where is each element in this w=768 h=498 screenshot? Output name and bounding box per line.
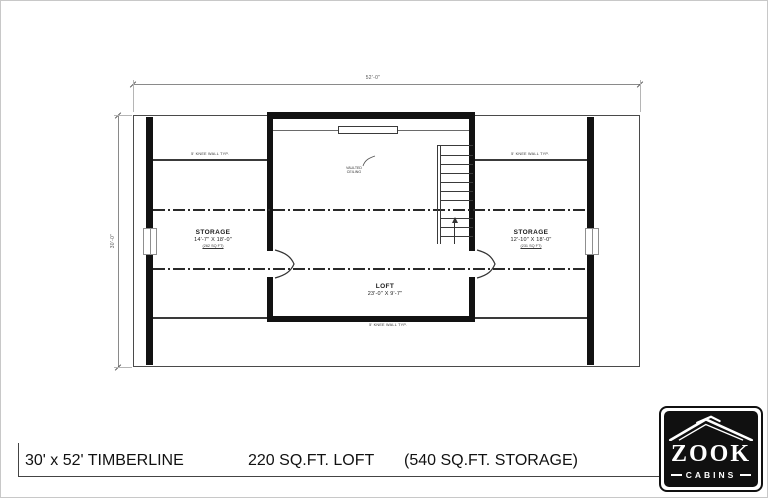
logo-background: ZOOK CABINS — [664, 411, 758, 487]
room-size: 14'-7" X 18'-0" — [163, 237, 263, 244]
room-name: STORAGE — [481, 229, 581, 237]
room-name: STORAGE — [163, 229, 263, 237]
opening-chevron-right — [477, 250, 495, 278]
knee-wall-note-bottom: 5' KNEE WALL TYP. — [338, 323, 438, 327]
room-size: 23'-0" X 9'-7" — [335, 291, 435, 298]
loft-label: LOFT 23'-0" X 9'-7" — [335, 283, 435, 298]
title-block-rule — [18, 476, 660, 477]
floor-plan-sheet: 52'-0" 30'-0" — [0, 0, 768, 498]
plan-title: 30' x 52' TIMBERLINE — [25, 452, 184, 470]
vaulted-leader-line — [363, 156, 375, 166]
loft-area-text: 220 SQ.FT. LOFT — [248, 452, 374, 470]
vaulted-note-line2: CEILING — [340, 170, 368, 174]
room-note: (262 SQ FT) — [163, 244, 263, 249]
logo-dash-left — [671, 474, 681, 476]
knee-wall-note-left: 5' KNEE WALL TYP. — [160, 152, 260, 156]
room-size: 12'-10" X 18'-0" — [481, 237, 581, 244]
logo-subtitle-text: CABINS — [686, 470, 737, 480]
logo-dash-right — [740, 474, 750, 476]
title-block-divider — [18, 443, 19, 477]
cabin-roof-icon — [667, 415, 755, 441]
knee-wall-note-right: 5' KNEE WALL TYP. — [480, 152, 580, 156]
room-note: (231 SQ FT) — [481, 244, 581, 249]
logo-subtitle-row: CABINS — [671, 470, 750, 480]
storage-right-label: STORAGE 12'-10" X 18'-0" (231 SQ FT) — [481, 229, 581, 249]
logo-brand-text: ZOOK — [671, 442, 751, 466]
opening-chevron-left — [275, 250, 294, 278]
storage-area-text: (540 SQ.FT. STORAGE) — [404, 452, 578, 470]
storage-left-label: STORAGE 14'-7" X 18'-0" (262 SQ FT) — [163, 229, 263, 249]
room-name: LOFT — [335, 283, 435, 291]
zook-cabins-logo: ZOOK CABINS — [659, 406, 763, 492]
opening-markers — [0, 0, 768, 498]
vaulted-ceiling-note: VAULTED CEILING — [340, 166, 368, 175]
